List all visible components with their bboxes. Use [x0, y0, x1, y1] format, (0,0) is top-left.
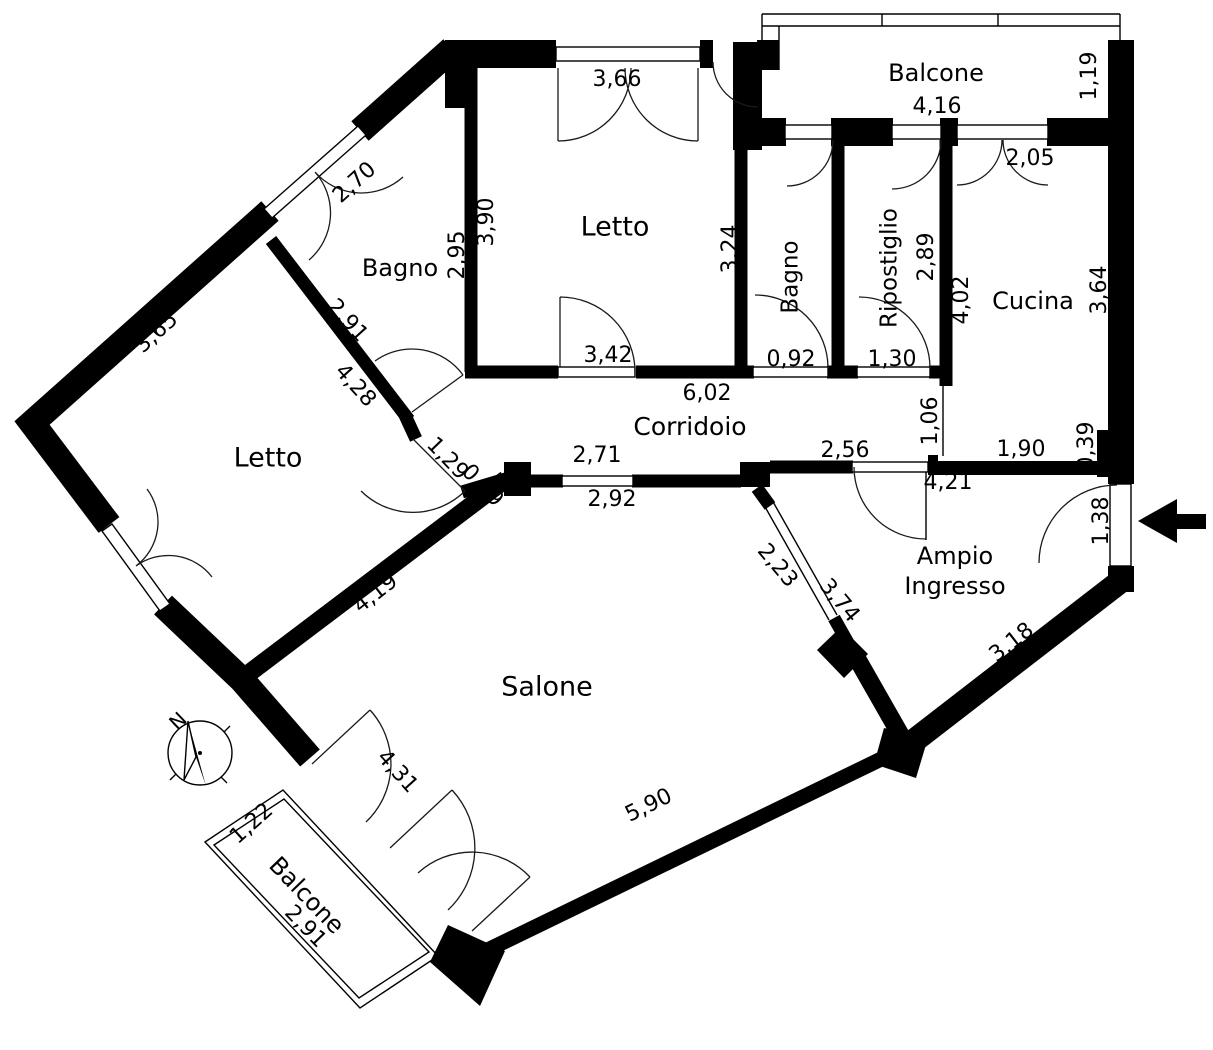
room-label-cucina: Cucina	[992, 287, 1074, 315]
dimension-label: 2,95	[445, 231, 470, 280]
dimension-label: 3,42	[584, 343, 633, 368]
dimension-label: 1,90	[997, 437, 1046, 462]
room-label-salone: Salone	[501, 672, 592, 703]
windows-layer	[102, 47, 1131, 611]
dimension-label: 0,92	[767, 347, 816, 372]
room-label-letto-left: Letto	[234, 443, 303, 474]
dimension-label: 3,24	[718, 225, 743, 274]
dimension-label: 3,90	[474, 198, 499, 247]
dimension-label: 4,02	[949, 276, 974, 325]
dimension-label: 4,16	[913, 94, 962, 119]
dimension-label: 1,19	[1077, 52, 1102, 101]
dimension-label: 2,71	[573, 443, 622, 468]
dimension-label: 3,74	[814, 574, 865, 628]
dimension-label: 3,64	[1087, 266, 1112, 315]
dimension-label: 2,56	[821, 438, 870, 463]
room-label-bagno-small: Bagno	[778, 240, 804, 313]
dimension-label: 1,30	[868, 347, 917, 372]
dimension-label: 4,31	[372, 745, 423, 798]
room-label-letto-top: Letto	[581, 212, 650, 243]
room-label-balcone-top: Balcone	[888, 59, 984, 87]
dimension-label: 2,05	[1006, 146, 1055, 171]
dimension-label: 2,92	[588, 487, 637, 512]
room-label-ampio-ingresso-line1: Ampio	[917, 542, 993, 570]
dimension-label: 1,38	[1089, 497, 1114, 546]
room-label-ampio-ingresso-line2: Ingresso	[904, 572, 1005, 600]
dimension-label: 0,39	[1074, 422, 1099, 471]
floorplan: LettoBagnoLettoBagnoRipostiglioCucinaCor…	[0, 0, 1213, 1050]
dimension-label: 4,21	[924, 470, 973, 495]
dimension-label: 1,06	[918, 397, 943, 446]
dimension-label: 3,66	[593, 67, 642, 92]
dimension-label: 2,70	[328, 157, 381, 208]
room-label-ripostiglio: Ripostiglio	[877, 208, 903, 328]
dimension-label: 5,90	[621, 784, 676, 828]
floorplan-svg: LettoBagnoLettoBagnoRipostiglioCucinaCor…	[0, 0, 1213, 1050]
entry-arrow-icon	[1138, 499, 1206, 543]
dimension-label: 1,22	[225, 798, 278, 849]
dimension-label: 2,89	[914, 233, 939, 282]
dimension-labels-layer: 3,663,902,952,703,652,914,281,290,493,42…	[130, 52, 1114, 953]
room-label-bagno-top-left: Bagno	[362, 254, 438, 282]
dimension-label: 2,23	[752, 539, 803, 593]
dimension-label: 6,02	[683, 381, 732, 406]
room-label-corridoio: Corridoio	[633, 412, 746, 441]
